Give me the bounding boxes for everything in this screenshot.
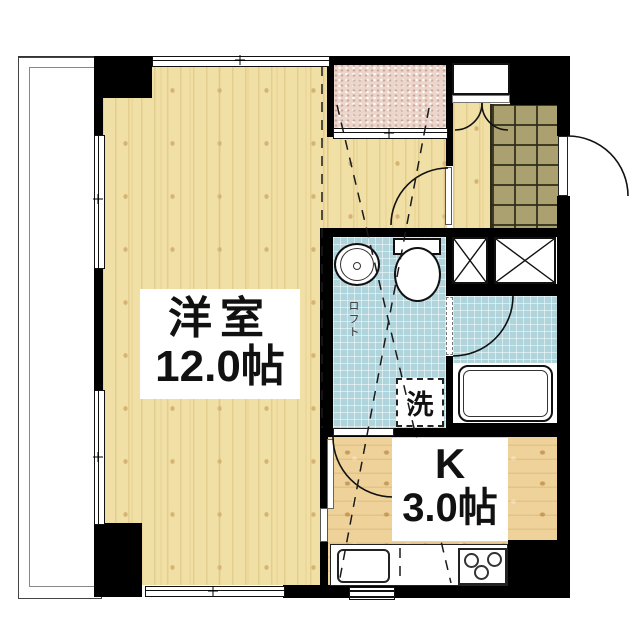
stove-burner (474, 565, 489, 580)
wall-segment (446, 284, 570, 296)
stove-burner (487, 552, 502, 567)
wall-segment (510, 64, 557, 105)
laundry-label: 洗 (407, 383, 434, 422)
toilet-bowl (394, 247, 441, 302)
kitchen-label: K 3.0帖 (392, 438, 508, 541)
door-leaf (327, 439, 334, 509)
front-door-swing-arc (568, 136, 628, 196)
wall-segment (327, 64, 334, 137)
closet (452, 63, 510, 95)
wall-segment (94, 98, 103, 135)
wall-segment (327, 56, 453, 65)
closet-track (452, 95, 510, 103)
wall-segment (320, 228, 333, 437)
loft-label: ロフト (347, 300, 358, 350)
window (152, 56, 330, 67)
bathtub-inner-line (463, 370, 548, 417)
wall-segment (557, 64, 570, 136)
window (94, 135, 105, 269)
wall-segment (94, 523, 142, 597)
window (94, 390, 105, 525)
window (145, 586, 285, 597)
pipe-space-box (494, 237, 556, 284)
door-leaf (445, 167, 452, 225)
wall-segment (94, 56, 152, 98)
front-door-leaf (558, 136, 568, 196)
window (320, 508, 328, 542)
basin-drain (353, 262, 361, 270)
kitchen-name: K (392, 442, 508, 486)
wall-segment (94, 267, 103, 390)
pipe-space-box (452, 237, 488, 284)
terrace-floor (333, 63, 446, 129)
kitchen-area: 3.0帖 (392, 486, 508, 530)
balcony-inner-line (29, 67, 97, 587)
bath-door-leaf (446, 297, 453, 355)
kitchen-vent (349, 587, 395, 600)
wall-segment (333, 228, 570, 237)
main-room-area: 12.0帖 (140, 343, 300, 391)
corridor-floor (327, 137, 447, 228)
entrance-hall-floor (453, 102, 491, 228)
wall-segment (557, 196, 570, 598)
kitchen-sink (337, 549, 390, 583)
main-room-name: 洋室 (140, 295, 300, 343)
main-room-label: 洋室 12.0帖 (140, 289, 300, 399)
wall-segment (508, 540, 570, 598)
entrance-tile-floor (490, 104, 559, 228)
floor-plan: 洋室 12.0帖 K 3.0帖 ロフト 洗 (0, 0, 640, 640)
window (333, 128, 448, 139)
door-leaf (333, 428, 394, 436)
bathroom-floor (453, 296, 557, 363)
laundry-box: 洗 (396, 378, 444, 427)
